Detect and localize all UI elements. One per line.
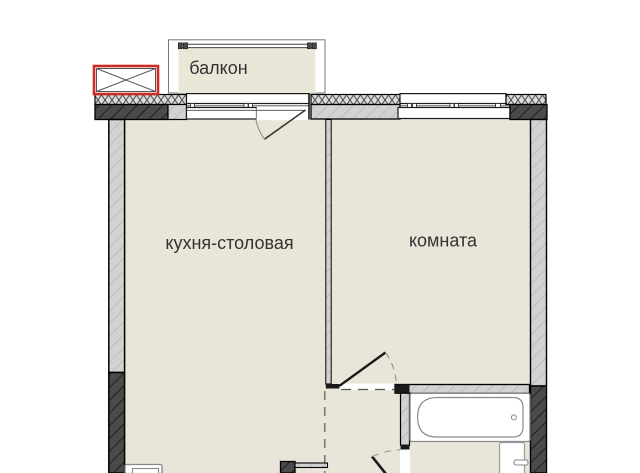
svg-text:комната: комната [409, 231, 478, 251]
svg-text:балкон: балкон [189, 58, 247, 78]
svg-text:кухня-столовая: кухня-столовая [165, 233, 293, 253]
